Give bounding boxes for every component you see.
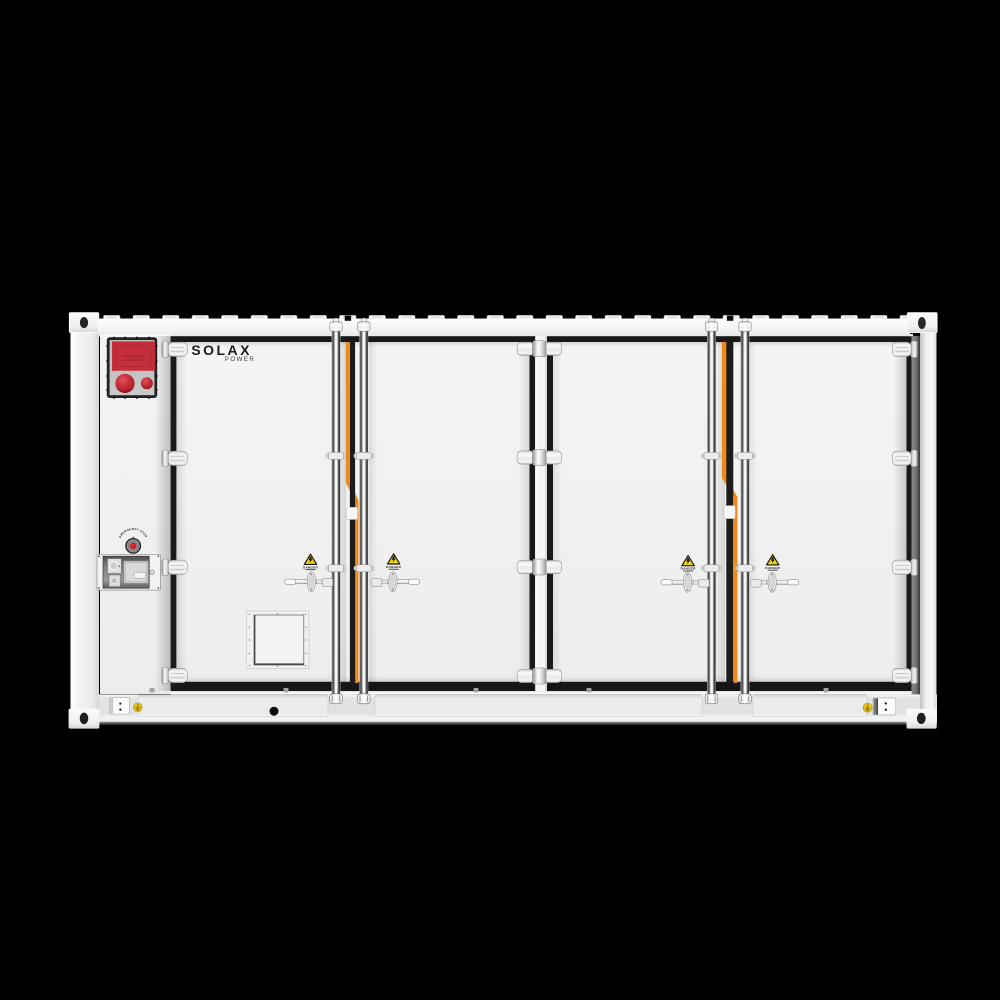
svg-text:DANGER: DANGER — [386, 565, 401, 569]
svg-text:DANGER: DANGER — [765, 566, 780, 570]
svg-text:DANGER: DANGER — [303, 565, 318, 569]
svg-text:POWER: POWER — [225, 356, 256, 363]
svg-text:DANGER: DANGER — [681, 567, 696, 571]
